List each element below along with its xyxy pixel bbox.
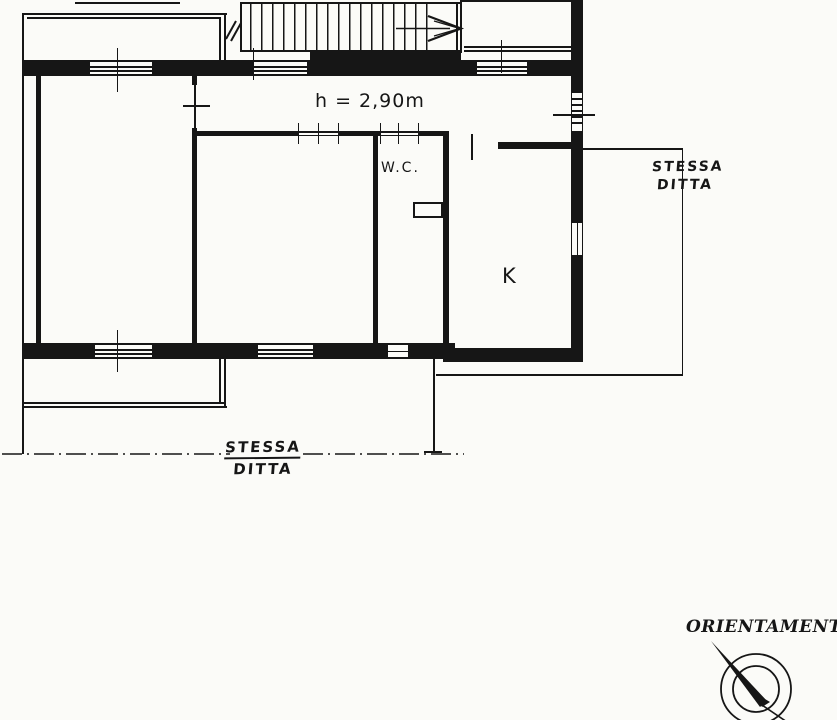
room-label-wc: W.C. <box>381 160 420 176</box>
room-label-kitchen: K <box>502 264 516 288</box>
boundary-label-right: STESSA DITTA <box>652 159 718 193</box>
orientation-label: ORIENTAMENTO <box>686 617 837 637</box>
boundary-label-bottom-line1: STESSA <box>224 438 302 460</box>
boundary-label-right-line2: DITTA <box>651 177 718 194</box>
boundary-label-bottom: STESSA DITTA <box>222 437 304 478</box>
floor-plan: h = 2,90m W.C. K STESSA DITTA STESSA DIT… <box>0 0 837 720</box>
ceiling-height-label: h = 2,90m <box>315 90 425 112</box>
boundary-label-bottom-line2: DITTA <box>221 460 304 479</box>
boundary-label-right-line1: STESSA <box>651 159 718 176</box>
